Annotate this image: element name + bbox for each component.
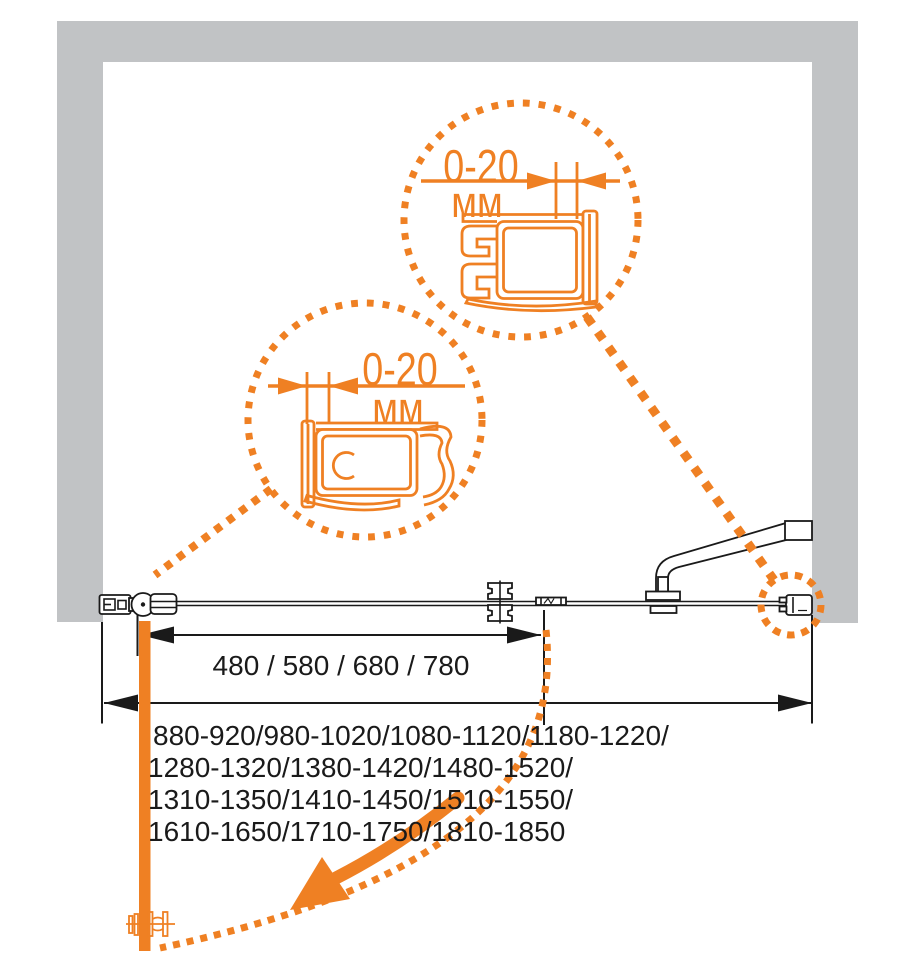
profile-left-foot	[305, 496, 399, 511]
arrowhead-total-left-icon	[104, 695, 138, 712]
profile-top-hook-upper	[462, 226, 497, 256]
size-range-list: 880-920/980-1020/1080-1120/1180-1220/ 12…	[148, 720, 768, 848]
callout-top-arrow-left-icon	[577, 173, 606, 190]
support-bar-post	[658, 577, 668, 592]
size-range-line: 1280-1320/1380-1420/1480-1520/	[148, 752, 768, 784]
swing-arrow-head	[290, 857, 350, 910]
profile-left-box	[316, 430, 417, 496]
installation-diagram: 0-20 мм 0-20 мм 480 / 580 / 680 / 780 88…	[0, 0, 921, 976]
size-range-line: 880-920/980-1020/1080-1120/1180-1220/	[148, 720, 768, 752]
profile-top-hook-lower	[462, 264, 497, 298]
door-width-options: 480 / 580 / 680 / 780	[141, 650, 541, 682]
callout-left-arrow-right-icon	[278, 378, 307, 395]
wall-profile-body	[786, 595, 812, 615]
hinge-pivot-dot	[141, 602, 145, 606]
hinge-clamp	[151, 594, 177, 614]
hinge-icon	[100, 593, 177, 616]
support-bar-mount-top	[646, 592, 680, 601]
arrowhead-total-right-icon	[778, 695, 812, 712]
callout-left-unit: мм	[313, 387, 483, 431]
callout-top-unit: мм	[392, 181, 562, 225]
profile-top-box	[497, 222, 583, 299]
profile-left-fin-inner	[420, 435, 444, 497]
wall-profile-tooth-bottom	[780, 607, 787, 612]
wall-profile-tooth-top	[780, 598, 787, 603]
profile-top-fin	[466, 299, 596, 311]
support-bar-mount-bottom	[651, 606, 677, 613]
size-range-line: 1310-1350/1410-1450/1510-1550/	[148, 784, 768, 816]
connector-icon	[536, 598, 566, 606]
size-range-line: 1610-1650/1710-1750/1810-1850	[148, 816, 768, 848]
support-bar	[656, 523, 786, 592]
arrowhead-right-icon	[507, 627, 541, 644]
door-glass	[174, 602, 786, 606]
support-bar-wall-cap	[785, 521, 812, 540]
leader-left-callout	[155, 489, 271, 575]
